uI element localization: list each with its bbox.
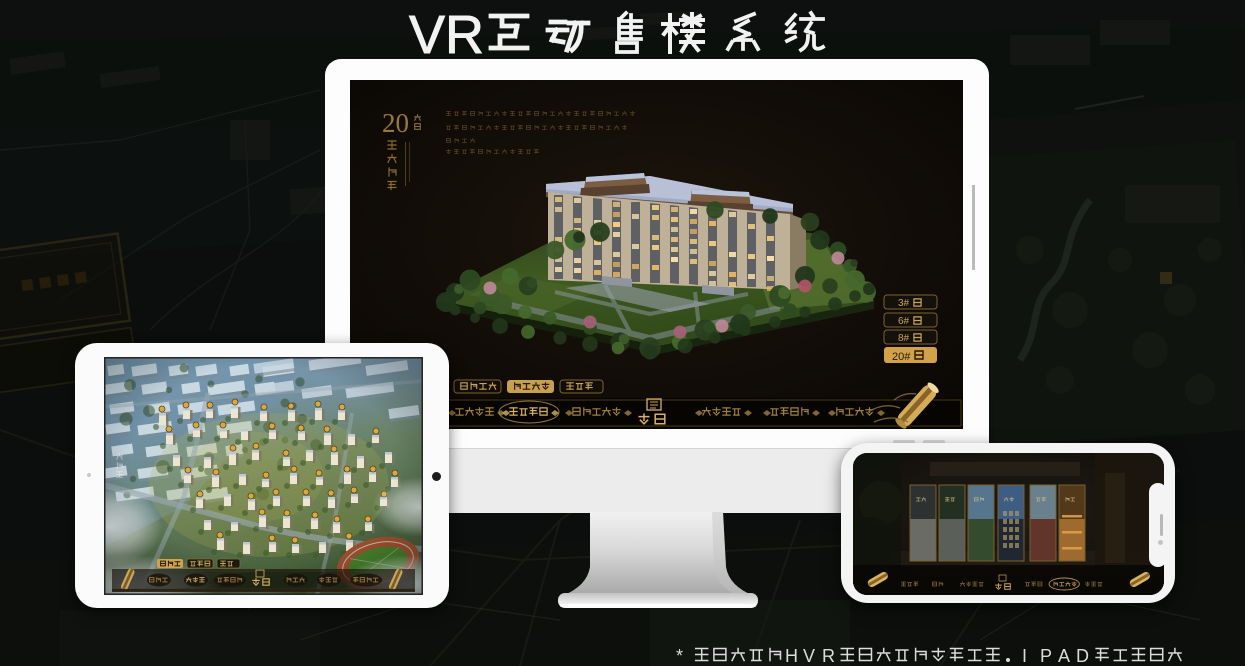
svg-text:R: R <box>822 646 835 666</box>
svg-text:VR: VR <box>409 5 484 64</box>
svg-text:20#: 20# <box>892 351 911 363</box>
svg-text:I: I <box>1022 646 1027 666</box>
svg-text:20: 20 <box>382 108 409 138</box>
svg-text:P: P <box>1040 646 1052 666</box>
svg-text:A: A <box>1058 646 1070 666</box>
svg-text:3#: 3# <box>898 298 910 309</box>
svg-text:H: H <box>785 646 798 666</box>
svg-text:6#: 6# <box>898 316 910 327</box>
svg-text:*: * <box>676 646 683 666</box>
svg-text:8#: 8# <box>898 333 910 344</box>
svg-text:V: V <box>803 646 815 666</box>
svg-text:D: D <box>1076 646 1089 666</box>
